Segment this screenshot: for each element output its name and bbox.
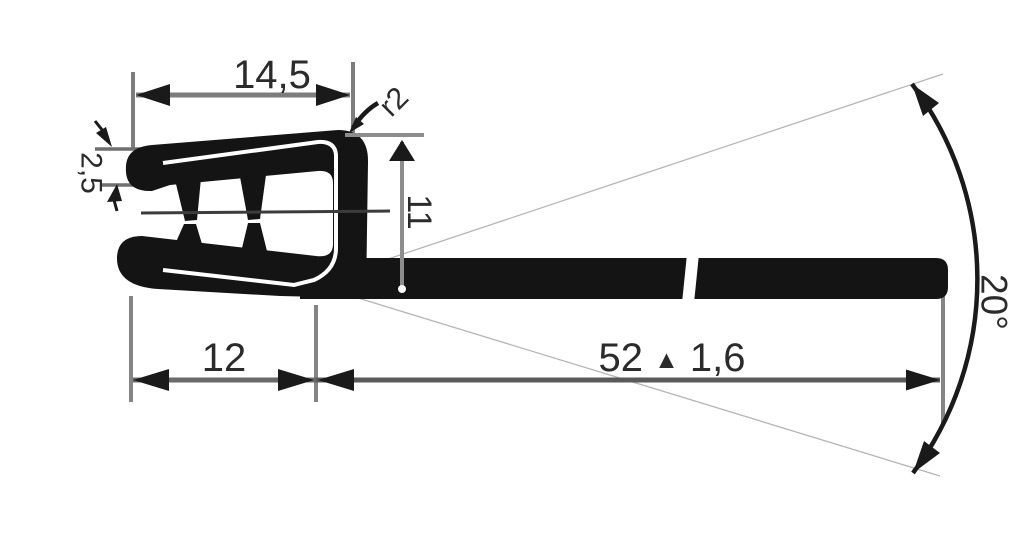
svg-text:2,5: 2,5: [75, 152, 108, 194]
svg-text:11: 11: [400, 194, 438, 229]
svg-text:14,5: 14,5: [233, 53, 311, 97]
svg-text:20°: 20°: [974, 274, 1015, 330]
svg-text:12: 12: [202, 336, 247, 380]
